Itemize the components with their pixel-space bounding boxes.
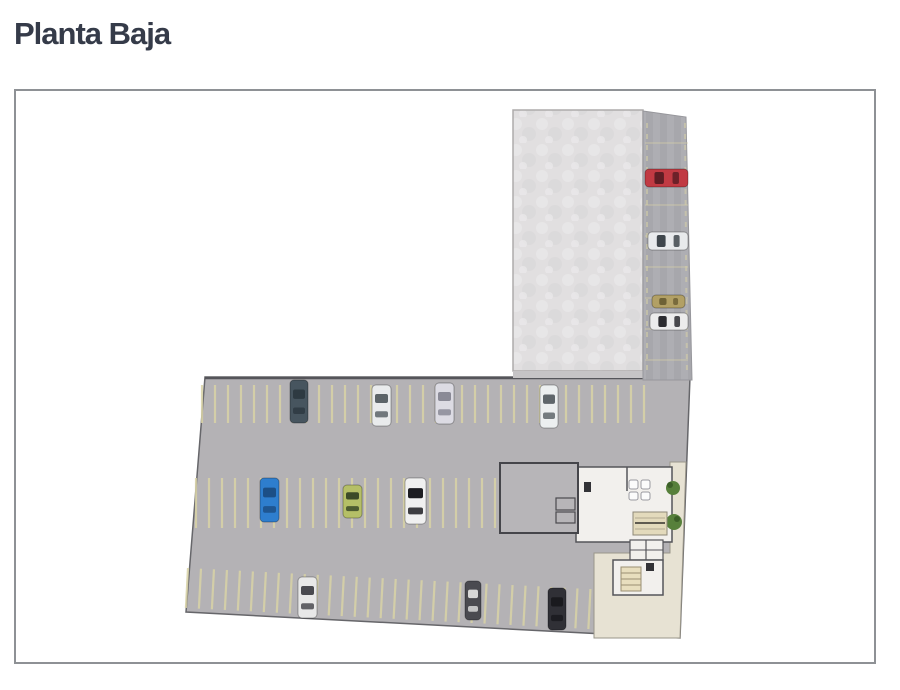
car: [465, 581, 481, 620]
floor-plan-panel: [14, 89, 876, 664]
car: [372, 385, 391, 426]
building-slab: [513, 110, 643, 371]
car: [548, 588, 566, 630]
car: [652, 295, 685, 308]
stairs-upper: [633, 512, 667, 535]
plant-icon: [666, 514, 682, 530]
floor-plan-drawing: [16, 91, 874, 662]
page-title: Planta Baja: [14, 16, 170, 52]
stairwell-room: [613, 560, 663, 595]
car: [648, 232, 688, 250]
car: [260, 478, 279, 522]
car: [650, 313, 688, 330]
car: [405, 478, 426, 524]
car: [290, 380, 308, 423]
service-rooms: [630, 540, 663, 560]
car: [298, 577, 317, 618]
closet-cell-bottom: [556, 512, 575, 523]
dark-fixture: [584, 482, 591, 492]
car: [435, 383, 454, 424]
closet-cell-top: [556, 498, 575, 510]
car: [343, 485, 362, 518]
car: [645, 169, 688, 187]
car: [540, 385, 558, 428]
slab-lower-band: [513, 371, 643, 378]
plant-icon: [666, 481, 680, 495]
